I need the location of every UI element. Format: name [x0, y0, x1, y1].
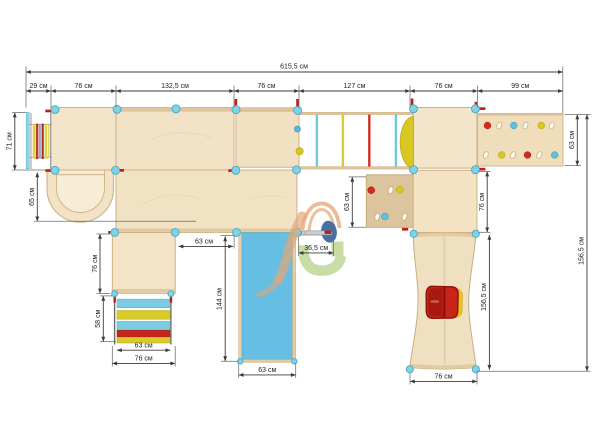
svg-text:615,5 см: 615,5 см [280, 64, 308, 71]
svg-text:76 см: 76 см [135, 356, 153, 363]
svg-text:76 см: 76 см [92, 254, 99, 272]
svg-text:63 см: 63 см [344, 193, 351, 211]
svg-text:132,5 см: 132,5 см [161, 83, 189, 90]
svg-text:63 см: 63 см [135, 343, 153, 350]
svg-text:63 см: 63 см [258, 367, 276, 374]
svg-text:144 см: 144 см [216, 288, 223, 310]
svg-text:127 см: 127 см [344, 83, 366, 90]
svg-text:76 см: 76 см [74, 83, 92, 90]
svg-text:76 см: 76 см [479, 193, 486, 211]
svg-text:65 см: 65 см [29, 188, 36, 206]
svg-text:71 см: 71 см [7, 132, 14, 150]
svg-text:76 см: 76 см [257, 83, 275, 90]
svg-text:156,5 см: 156,5 см [578, 237, 585, 265]
svg-text:76 см: 76 см [435, 83, 453, 90]
svg-text:99 см: 99 см [511, 83, 529, 90]
svg-text:156,5 см: 156,5 см [481, 283, 488, 311]
svg-text:63 см: 63 см [569, 131, 576, 149]
svg-text:58 см: 58 см [95, 309, 102, 327]
svg-text:63 см: 63 см [195, 239, 213, 246]
svg-text:36,5 см: 36,5 см [304, 245, 328, 252]
svg-text:29 см: 29 см [29, 83, 47, 90]
svg-text:76 см: 76 см [434, 374, 452, 381]
